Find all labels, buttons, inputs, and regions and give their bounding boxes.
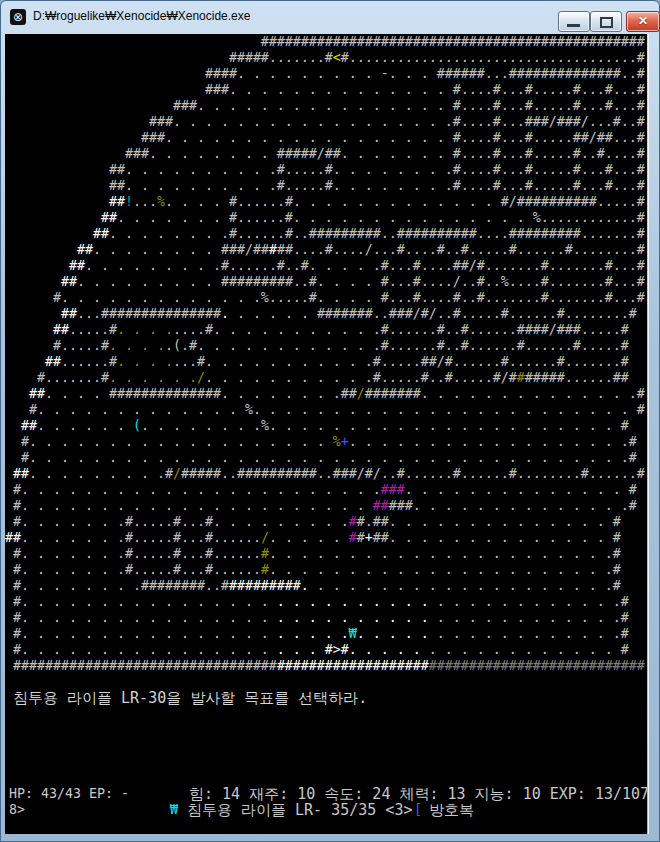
map-row: ###. . . . . . . . . . . . . . #....#...… bbox=[5, 82, 645, 98]
map-row: ########################################… bbox=[5, 34, 645, 50]
map-row: ###. . . . . . . . #####/##. . . . . . .… bbox=[5, 146, 645, 162]
map-row: ##. . . . . . . . . .#.....#. . . . . . … bbox=[5, 162, 645, 178]
map-row: ##. . . . ##############. . . . . . . .#… bbox=[5, 386, 645, 402]
map-row: #####.......#<#.........................… bbox=[5, 50, 645, 66]
window-border-highlight bbox=[648, 34, 649, 834]
map-row: #.......#. . . . . ./. . . . . . . . . .… bbox=[5, 370, 645, 386]
console: ########################################… bbox=[5, 34, 647, 834]
weapon-label: 침투용 라이플 LR- 35/35 <3> bbox=[187, 802, 412, 818]
map-row: #. . . . . . . . . . . . . . . . . . . %… bbox=[5, 434, 645, 450]
map-row: #. . . . . . . . . . . . . . . . . . . .… bbox=[5, 594, 645, 610]
close-icon: ✕ bbox=[627, 12, 659, 31]
weapon-icon: ₩ bbox=[170, 802, 178, 818]
close-button[interactable]: ✕ bbox=[626, 11, 660, 32]
map-row: #. . . . . . . . . . . . . . . . . . . .… bbox=[5, 498, 645, 514]
hp-ep-readout: HP: 43/43 EP: - bbox=[9, 786, 129, 802]
minimize-icon bbox=[567, 24, 580, 27]
status-line-3: 도시 - 북서부 구역 bbox=[5, 818, 641, 834]
armor-icon: [ bbox=[414, 802, 422, 818]
map-row: #. . . . . . . . . . . . .%.....#. . . .… bbox=[5, 290, 645, 306]
map-row: #. . . . . . . . . . . . . . . . . . . .… bbox=[5, 450, 645, 466]
map-row: ###. . . . . . . . . . . . . . . . . . #… bbox=[5, 130, 645, 146]
map-row: #. . . . . . . . . . . . . . . . . . . #… bbox=[5, 642, 645, 658]
map-row: #. . . . . . .#.....#...#......#. . . . … bbox=[5, 562, 645, 578]
map-row: ##.....#. . . .....#. . . . . . . . . . … bbox=[5, 322, 645, 338]
message-line: 침투용 라이플 LR-30을 발사할 목표를 선택하라. bbox=[13, 690, 367, 706]
map-row: #. . . . . . . .########..##########. . … bbox=[5, 578, 645, 594]
maximize-icon bbox=[600, 17, 613, 28]
map-row: ####. . . . . . . . . -. . . ######...##… bbox=[5, 66, 645, 82]
location-label: 도시 - 북서부 구역 bbox=[500, 833, 641, 834]
map: ########################################… bbox=[5, 34, 645, 674]
map-row: ##. . . . . . . . .#......#..#. . . . .#… bbox=[5, 258, 645, 274]
map-row: ##. . . . . . . #......#. . . . . . . . … bbox=[5, 210, 645, 226]
map-row: ########################################… bbox=[5, 658, 645, 674]
map-row: ###. . . . . . . . . . . . . . . . . .#.… bbox=[5, 114, 645, 130]
map-row: ##. . . . . . . . ###/#####....#..../...… bbox=[5, 242, 645, 258]
map-row: ##......#. . . ....#. . . . . . . . . . … bbox=[5, 354, 645, 370]
map-row: ##. . . . . . (. . . . . . . .%. . . . .… bbox=[5, 418, 645, 434]
map-row: ##. . . . . . . . . .#.....#. . . . . . … bbox=[5, 178, 645, 194]
map-row: #. . . . . . . . . . . . . %. . . . . . … bbox=[5, 402, 645, 418]
window-title: D:₩roguelike₩Xenocide₩Xenocide.exe bbox=[33, 9, 250, 23]
exp-wrap-readout: 8> bbox=[9, 802, 25, 818]
armor-label: 방호복 bbox=[429, 802, 474, 818]
console-window: ⊗ D:₩roguelike₩Xenocide₩Xenocide.exe ✕ #… bbox=[0, 0, 660, 842]
maximize-button[interactable] bbox=[590, 11, 622, 32]
map-row: ##. . . . . . . . . #########..#. . . . … bbox=[5, 274, 645, 290]
map-row: ##!...%. . . . #......#. . . . . . . . .… bbox=[5, 194, 645, 210]
map-row: ##. . . . . . . . .#/#####..##########..… bbox=[5, 466, 645, 482]
map-row: ##...###############. . . . . . #######.… bbox=[5, 306, 645, 322]
map-row: #.....#. . . ..(.#. . . . . . . . . . . … bbox=[5, 338, 645, 354]
map-row: ###. . . . . . . . . . . . . . . . #....… bbox=[5, 98, 645, 114]
map-row: #. . . . . . . . . . . . . . . . . . . .… bbox=[5, 626, 645, 642]
stats-readout: 힘: 14 재주: 10 속도: 24 체력: 13 지능: 10 EXP: 1… bbox=[189, 786, 647, 802]
status-line-2: 8> ₩ 침투용 라이플 LR- 35/35 <3> [ 방호복 bbox=[5, 802, 647, 818]
map-row: #. . . . . . . . . . . . . . . . . . . .… bbox=[5, 610, 645, 626]
app-icon: ⊗ bbox=[10, 9, 26, 25]
minimize-button[interactable] bbox=[558, 11, 590, 32]
map-row: ##. . . . . . . .#......#..#########..##… bbox=[5, 226, 645, 242]
status-line-1: HP: 43/43 EP: - 힘: 14 재주: 10 속도: 24 체력: … bbox=[5, 786, 647, 802]
map-row: #. . . . . . . . . . . . . . . . . . . .… bbox=[5, 482, 645, 498]
titlebar[interactable]: ⊗ D:₩roguelike₩Xenocide₩Xenocide.exe ✕ bbox=[1, 1, 659, 31]
map-row: ##. . . . . . .#.....#...#....../. . . .… bbox=[5, 530, 645, 546]
map-row: #. . . . . . .#.....#...#......#. . . . … bbox=[5, 546, 645, 562]
map-row: #. . . . . . .#.....#...#. . . . . . . .… bbox=[5, 514, 645, 530]
